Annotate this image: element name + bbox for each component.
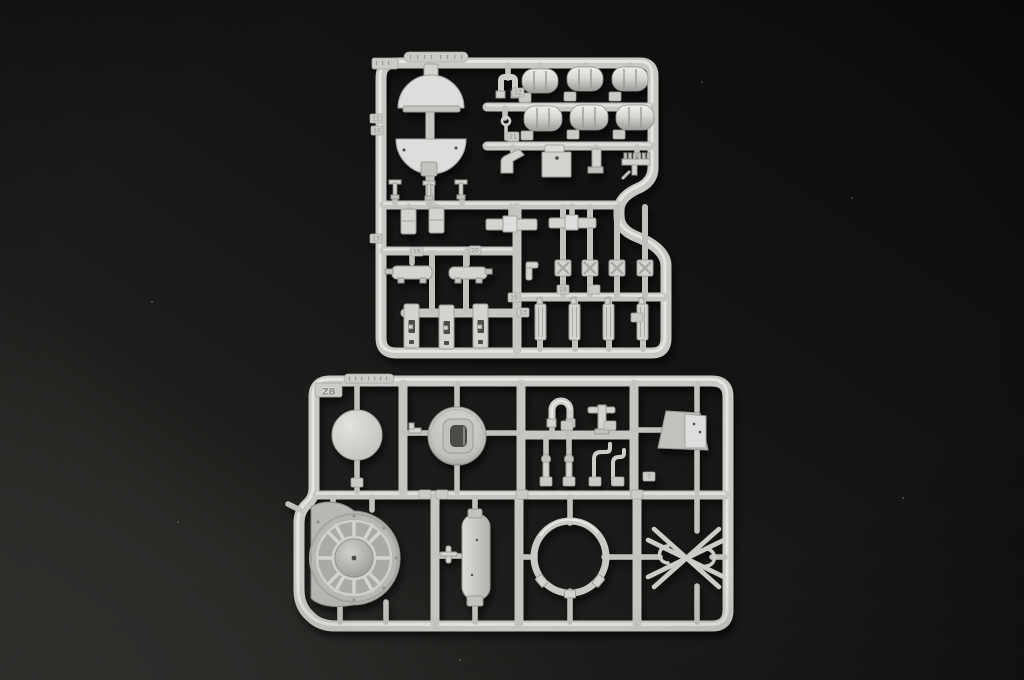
sprue-photo-canvas: 11 10 13 12 21 16 20 18 19 13 xyxy=(0,0,1024,680)
vignette-overlay xyxy=(0,0,1024,680)
photo-of-model-kit-sprues: 11 10 13 12 21 16 20 18 19 13 xyxy=(0,0,1024,680)
